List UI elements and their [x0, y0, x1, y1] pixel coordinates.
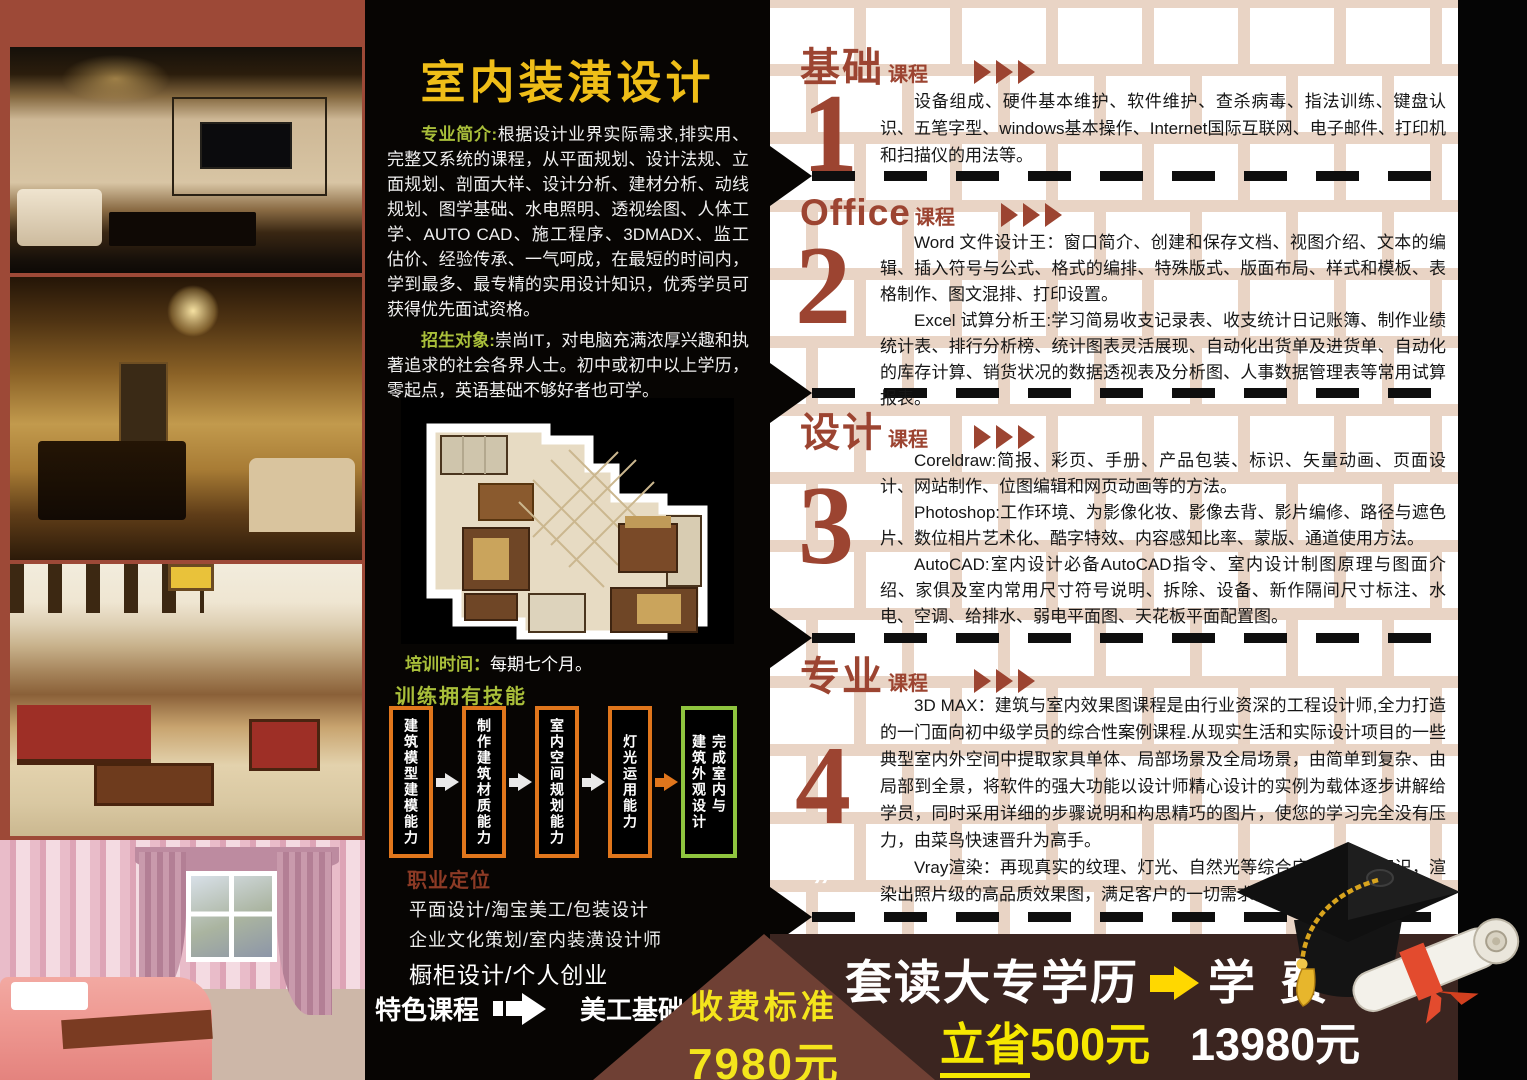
dashed-divider	[812, 171, 1455, 181]
career-line-3: 橱柜设计/个人创业	[409, 956, 608, 990]
arrow-right-icon	[509, 773, 532, 791]
arrow-right-orange-icon	[655, 773, 678, 791]
arrow-right-white-icon	[493, 993, 546, 1025]
triple-arrow-icon	[974, 669, 1040, 693]
target-paragraph: 招生对象:崇尚IT，对电脑充满浓厚兴趣和执著追求的社会各界人士。初中或初中以上学…	[387, 328, 749, 403]
photo-pink-bedroom	[0, 840, 365, 1080]
intro-paragraph: 专业简介:根据设计业界实际需求,排实用、完整又系统的课程，从平面规划、设计法规、…	[387, 122, 749, 322]
section-number-4: 4	[795, 730, 851, 842]
sofa-shape	[17, 189, 101, 246]
intro-label: 专业简介:	[421, 125, 497, 144]
career-title: 职业定位	[407, 864, 491, 893]
heading-professional: 专业	[800, 657, 884, 697]
feature-label: 特色课程	[375, 990, 479, 1027]
intro-text: 根据设计业界实际需求,排实用、完整又系统的课程，从平面规划、设计法规、立面规划、…	[387, 125, 749, 319]
sofa-shape	[249, 458, 355, 532]
skill-box-1: 建筑模型建模能力	[389, 706, 433, 858]
center-panel: 室内装潢设计 专业简介:根据设计业界实际需求,排实用、完整又系统的课程，从平面规…	[365, 0, 770, 1080]
dining-chairs-shape	[38, 441, 186, 520]
diploma-scroll-icon	[1342, 893, 1527, 1033]
photo-golden-dining-room	[10, 277, 362, 560]
floor-plan-drawing	[401, 398, 734, 644]
target-label: 招生对象:	[421, 331, 495, 350]
career-line-2: 企业文化策划/室内装潢设计师	[409, 926, 662, 952]
flyer-poster: 室内装潢设计 专业简介:根据设计业界实际需求,排实用、完整又系统的课程，从平面规…	[0, 0, 1527, 1080]
wood-table-shape	[94, 763, 214, 807]
save-text: 立省500元	[940, 1008, 1150, 1073]
ceiling-lamp-shape	[168, 564, 214, 591]
photo-column	[0, 0, 365, 1080]
pillow-shape	[11, 982, 88, 1011]
promo-title: 套读大专学历	[845, 944, 1139, 1013]
skill-box-4: 灯光运用能力	[608, 706, 652, 858]
skill-box-2: 制作建筑材质能力	[462, 706, 506, 858]
section-number-2: 2	[795, 230, 851, 342]
window-shape	[186, 871, 277, 962]
section-number-3: 3	[798, 470, 854, 582]
duration-line: 培训时间：每期七个月。	[405, 650, 592, 675]
section-number-1: 1	[802, 78, 858, 190]
section-text-office: Word 文件设计王：窗口简介、创建和保存文档、视图介绍、文本的编辑、插入符号与…	[880, 230, 1446, 412]
triple-arrow-icon	[974, 425, 1040, 449]
photo-red-sofa-living-room	[10, 564, 362, 836]
skills-flowchart: 建筑模型建模能力 制作建筑材质能力 室内空间规划能力 灯光运用能力 完成室内与 …	[389, 706, 751, 858]
skill-box-5: 完成室内与 建筑外观设计	[681, 706, 737, 858]
section-heading-design: 设计课程	[800, 413, 1040, 453]
heading-design: 设计	[800, 413, 884, 453]
red-sofa-shape	[17, 705, 151, 765]
coffee-table-shape	[109, 212, 257, 246]
dashed-divider	[812, 633, 1455, 643]
tv-screen	[200, 122, 292, 169]
page-title: 室内装潢设计	[365, 46, 770, 111]
career-line-1: 平面设计/淘宝美工/包装设计	[409, 896, 649, 922]
section-heading-professional: 专业课程	[800, 657, 1040, 697]
floor-plan-image	[401, 398, 734, 644]
skill-box-3: 室内空间规划能力	[535, 706, 579, 858]
skills-title: 训练拥有技能	[395, 680, 527, 709]
section-text-design: Coreldraw:简报、彩页、手册、产品包装、标识、矢量动画、页面设计、网站制…	[880, 448, 1446, 630]
section-text-basic: 设备组成、硬件基本维护、软件维护、查杀病毒、指法训练、键盘认识、五笔字型、win…	[880, 88, 1446, 169]
arrow-right-icon	[436, 773, 459, 791]
decor-quote-mark: ”	[812, 868, 830, 904]
arrow-right-icon	[582, 773, 605, 791]
arrow-right-yellow-icon	[1150, 966, 1199, 1000]
triple-arrow-icon	[1001, 203, 1067, 227]
feature-course-row: 特色课程 美工基础	[375, 990, 684, 1027]
duration-text: 每期七个月。	[490, 655, 592, 674]
curtain-left-shape	[139, 852, 186, 996]
photo-chinese-tv-living-room	[10, 47, 362, 273]
red-chair-shape	[249, 719, 319, 771]
curtain-right-shape	[277, 852, 332, 1015]
triple-arrow-icon	[974, 60, 1040, 84]
duration-label: 培训时间：	[405, 655, 490, 674]
